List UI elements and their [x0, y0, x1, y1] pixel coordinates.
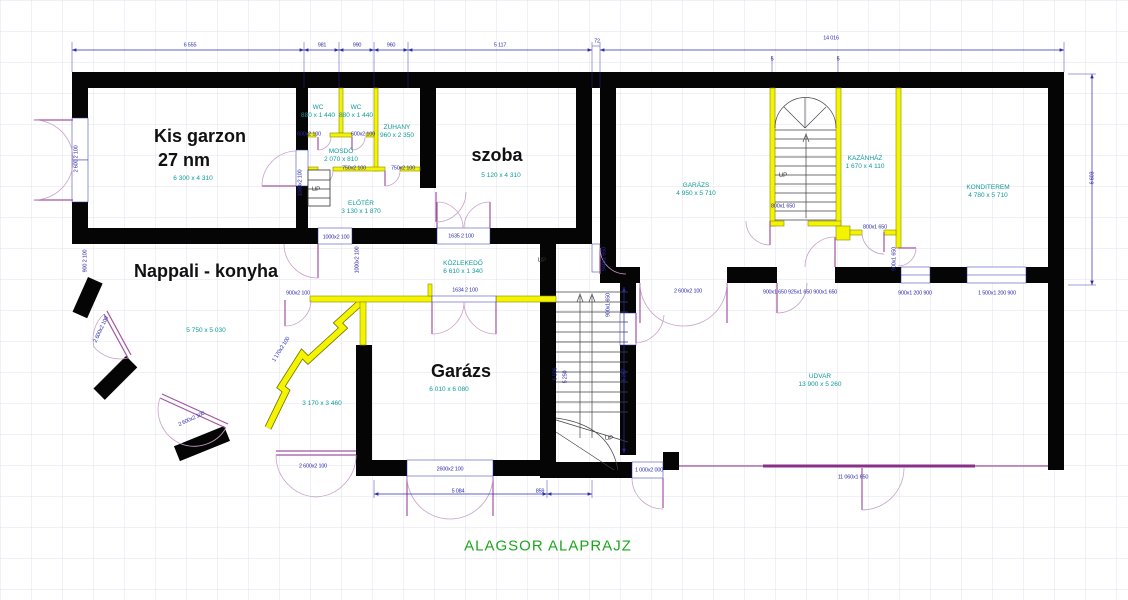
floor-plan-drawing: [0, 0, 1128, 600]
grid-background: [0, 0, 1128, 600]
entry-steps: [308, 170, 330, 206]
drawing-title: ALAGSOR ALAPRAJZ: [464, 538, 632, 555]
floor-plan-canvas: Kis garzon27 nmszobaNappali - konyhaGará…: [0, 0, 1128, 600]
